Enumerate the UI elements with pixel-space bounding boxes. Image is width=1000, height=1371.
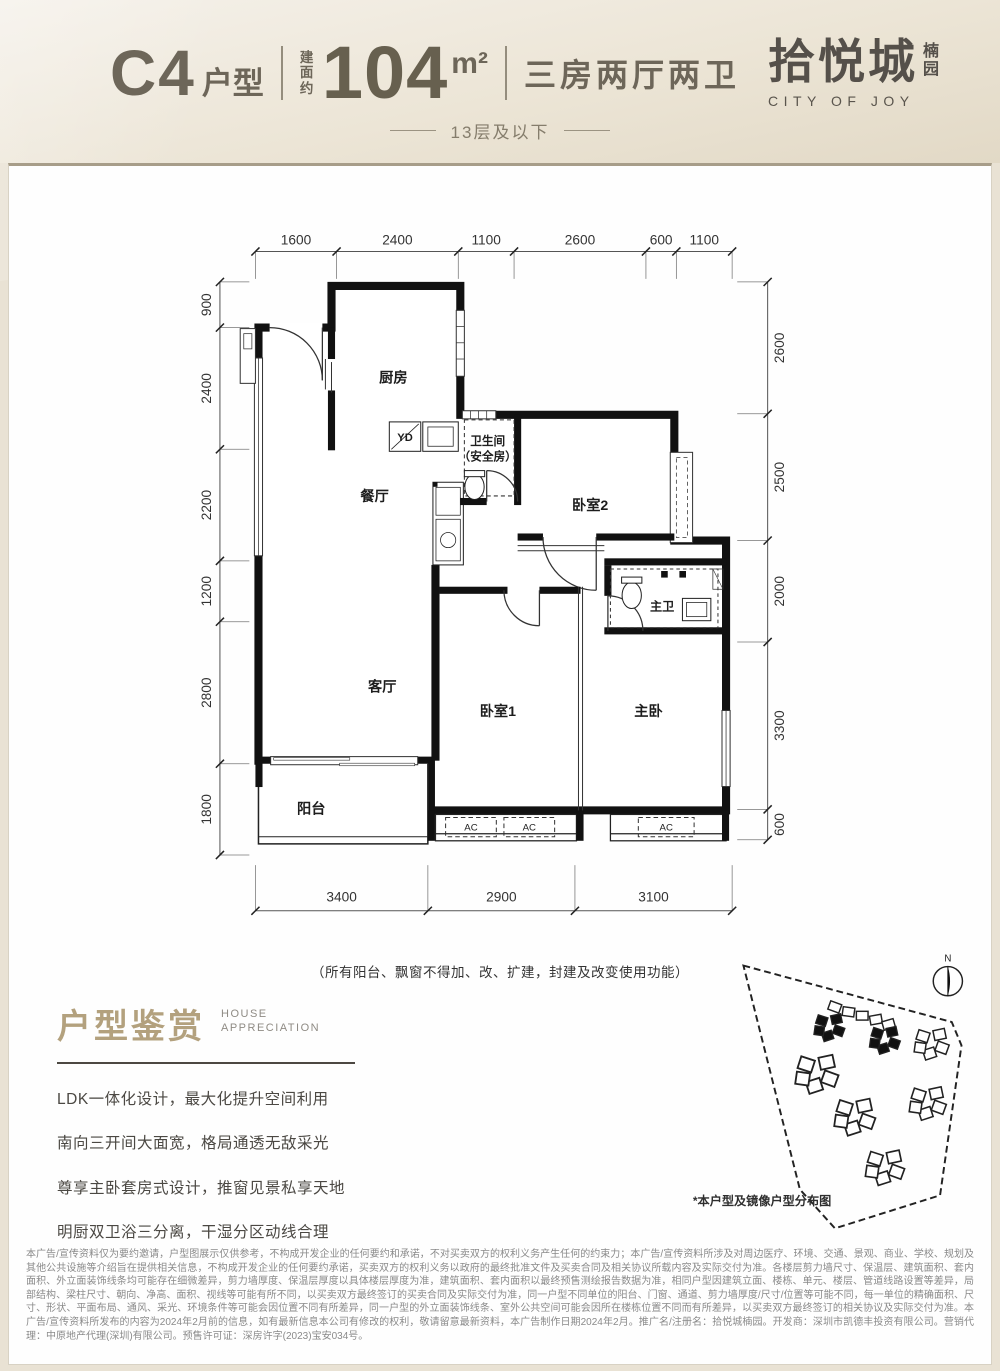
site-plan-caption: *本户型及镜像户型分布图 (693, 1193, 831, 1208)
svg-text:1200: 1200 (199, 576, 214, 607)
svg-text:2400: 2400 (382, 232, 413, 247)
room-bath-sub: （安全房） (459, 449, 517, 463)
flyer-page: C4 户型 建面约 104 m² 三房两厅两卫 拾悦城 楠园 CITY OF J… (0, 0, 1000, 1371)
unit-suffix: 户型 (202, 58, 264, 103)
svg-text:3100: 3100 (638, 890, 669, 905)
svg-text:1100: 1100 (690, 232, 720, 247)
compass-icon: N (933, 954, 962, 996)
room-master: 主卧 (634, 703, 662, 720)
label-ac: AC (660, 823, 673, 834)
svg-text:2000: 2000 (772, 576, 787, 607)
svg-text:1800: 1800 (199, 794, 214, 825)
appreciation-rule (57, 1062, 355, 1064)
svg-text:600: 600 (650, 232, 673, 247)
floor-note-text: 13层及以下 (451, 118, 550, 143)
svg-text:3300: 3300 (772, 710, 787, 741)
room-bedroom2: 卧室2 (572, 497, 608, 514)
floor-plan-walls (240, 286, 730, 844)
buildings (795, 1028, 949, 1185)
svg-text:600: 600 (772, 813, 787, 836)
label-ac: AC (523, 823, 536, 834)
svg-text:2800: 2800 (199, 677, 214, 708)
dash-right (564, 130, 610, 131)
svg-text:2400: 2400 (199, 373, 214, 404)
floor-note: 13层及以下 (0, 118, 1000, 143)
room-dining: 餐厅 (359, 488, 388, 505)
area-block: 建面约 104 m² (300, 42, 488, 105)
label-yd: YD (397, 432, 412, 444)
feature-item: 尊享主卧套房式设计，推窗见景私享天地 (57, 1176, 487, 1198)
legal-disclaimer: 本广告/宣传资料仅为要约邀请，户型图展示仅供参考，不构成开发企业的任何要约和承诺… (26, 1248, 974, 1343)
unit-code: C4 (110, 43, 196, 104)
brand-sub: 楠园 (923, 43, 940, 80)
room-living: 客厅 (367, 679, 396, 696)
feature-item: 南向三开间大面宽，格局通透无敌采光 (57, 1131, 487, 1153)
appreciation-title: 户型鉴赏 (57, 999, 205, 1048)
divider (505, 46, 507, 100)
area-value: 104 (322, 42, 448, 105)
title-row: C4 户型 建面约 104 m² 三房两厅两卫 (110, 42, 740, 105)
svg-text:900: 900 (199, 293, 214, 316)
svg-text:2200: 2200 (199, 489, 214, 520)
site-plan: N *本户型及镜像户型分布图 (687, 948, 979, 1244)
svg-text:2600: 2600 (565, 232, 596, 247)
brand-logo: 拾悦城 楠园 CITY OF JOY (768, 38, 940, 109)
brand-name: 拾悦城 (768, 38, 918, 85)
appreciation-subtitle: HOUSE APPRECIATION (221, 1007, 320, 1036)
main-panel: 1600 2400 1100 2600 600 1100 900 2400 22… (8, 163, 992, 1365)
layout-desc: 三房两厅两卫 (524, 50, 740, 96)
room-bath: 卫生间 (470, 434, 505, 448)
svg-text:1100: 1100 (471, 232, 501, 247)
room-bedroom1: 卧室1 (480, 703, 516, 720)
brand-en: CITY OF JOY (768, 93, 940, 109)
svg-text:3400: 3400 (326, 890, 357, 905)
feature-item: 明厨双卫浴三分离，干湿分区动线合理 (57, 1220, 487, 1242)
feature-item: LDK一体化设计，最大化提升空间利用 (57, 1087, 487, 1109)
header: C4 户型 建面约 104 m² 三房两厅两卫 拾悦城 楠园 CITY OF J… (0, 0, 1000, 163)
svg-text:2900: 2900 (486, 890, 517, 905)
floor-plan: 1600 2400 1100 2600 600 1100 900 2400 22… (159, 216, 859, 926)
svg-text:2600: 2600 (772, 332, 787, 363)
area-unit: m² (451, 47, 488, 81)
room-balcony: 阳台 (297, 800, 325, 817)
svg-text:1600: 1600 (281, 232, 312, 247)
label-ac: AC (464, 823, 477, 834)
appreciation-section: 户型鉴赏 HOUSE APPRECIATION LDK一体化设计，最大化提升空间… (57, 999, 487, 1242)
area-prefix: 建面约 (300, 50, 315, 98)
room-kitchen: 厨房 (379, 369, 407, 386)
dash-left (390, 130, 436, 131)
divider (281, 46, 283, 100)
svg-text:N: N (944, 954, 951, 965)
svg-text:2500: 2500 (772, 462, 787, 493)
site-boundary (743, 966, 961, 1229)
room-master-bath: 主卫 (650, 599, 674, 614)
brand-cn: 拾悦城 楠园 (768, 38, 940, 85)
